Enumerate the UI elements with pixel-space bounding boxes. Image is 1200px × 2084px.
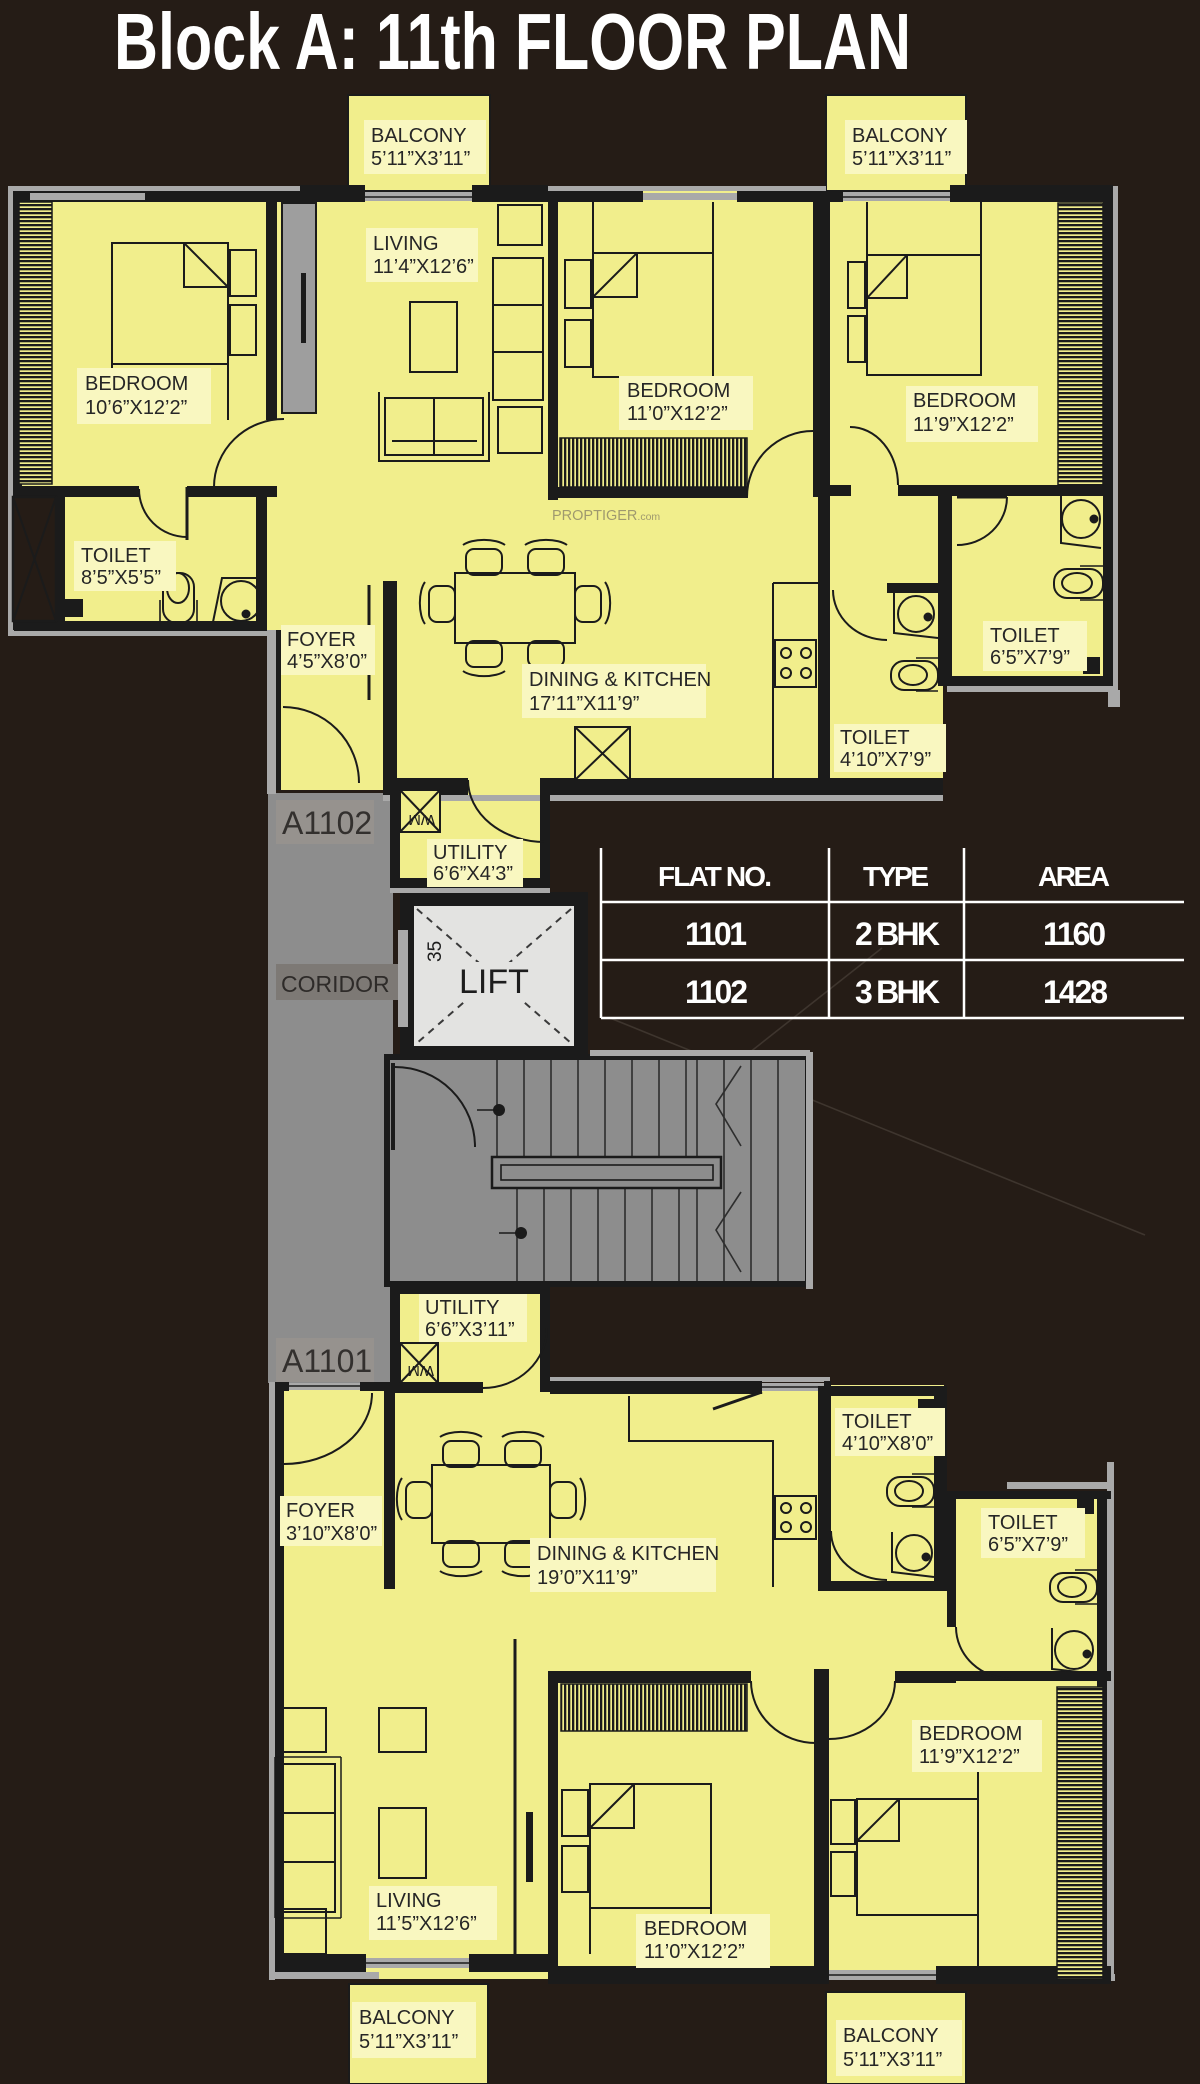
svg-text:LIVING: LIVING	[373, 233, 439, 255]
svg-text:5’11”X3’11”: 5’11”X3’11”	[371, 148, 470, 170]
svg-text:11’9”X12’2”: 11’9”X12’2”	[913, 414, 1014, 436]
svg-text:6’6”X3’11”: 6’6”X3’11”	[425, 1319, 515, 1341]
svg-text:WM: WM	[407, 1362, 434, 1379]
svg-text:8’5”X5’5”: 8’5”X5’5”	[81, 567, 161, 589]
svg-text:2 BHK: 2 BHK	[855, 916, 940, 952]
svg-text:1101: 1101	[685, 916, 747, 952]
svg-text:3 BHK: 3 BHK	[855, 974, 940, 1010]
svg-text:1428: 1428	[1043, 974, 1108, 1010]
svg-text:BALCONY: BALCONY	[359, 2007, 455, 2029]
svg-text:BEDROOM: BEDROOM	[85, 373, 188, 395]
svg-text:1102: 1102	[685, 974, 748, 1010]
svg-text:TYPE: TYPE	[863, 861, 929, 892]
svg-text:6’5”X7’9”: 6’5”X7’9”	[988, 1534, 1068, 1556]
svg-text:LIVING: LIVING	[376, 1890, 442, 1912]
svg-text:1160: 1160	[1043, 916, 1106, 952]
svg-text:TOILET: TOILET	[842, 1411, 912, 1433]
svg-text:4’10”X7’9”: 4’10”X7’9”	[840, 749, 931, 771]
svg-text:A1102: A1102	[282, 805, 372, 841]
svg-text:3’10”X8’0”: 3’10”X8’0”	[286, 1523, 377, 1545]
svg-text:Block A: 11th FLOOR PLAN: Block A: 11th FLOOR PLAN	[114, 0, 911, 86]
svg-text:6’6”X4’3”: 6’6”X4’3”	[433, 863, 513, 885]
svg-text:FOYER: FOYER	[286, 1500, 355, 1522]
svg-text:BEDROOM: BEDROOM	[919, 1723, 1022, 1745]
svg-text:BEDROOM: BEDROOM	[627, 380, 730, 402]
svg-text:17’11”X11’9”: 17’11”X11’9”	[529, 693, 639, 715]
svg-text:TOILET: TOILET	[990, 625, 1060, 647]
svg-text:LIFT: LIFT	[459, 963, 529, 1001]
svg-text:5’11”X3’11”: 5’11”X3’11”	[359, 2031, 458, 2053]
svg-text:DINING & KITCHEN: DINING & KITCHEN	[537, 1543, 719, 1565]
svg-text:TOILET: TOILET	[840, 727, 910, 749]
svg-text:TOILET: TOILET	[988, 1512, 1058, 1534]
svg-text:UTILITY: UTILITY	[425, 1297, 499, 1319]
svg-text:PROPTIGER.com: PROPTIGER.com	[552, 508, 660, 524]
svg-text:11’4”X12’6”: 11’4”X12’6”	[373, 256, 474, 278]
svg-text:5’11”X3’11”: 5’11”X3’11”	[843, 2049, 942, 2071]
svg-text:11’5”X12’6”: 11’5”X12’6”	[376, 1913, 477, 1935]
svg-text:CORIDOR: CORIDOR	[281, 971, 390, 997]
svg-text:BALCONY: BALCONY	[852, 125, 948, 147]
svg-text:WM: WM	[408, 811, 435, 828]
svg-text:A1101: A1101	[282, 1343, 372, 1379]
svg-text:11’0”X12’2”: 11’0”X12’2”	[644, 1941, 745, 1963]
svg-text:UTILITY: UTILITY	[433, 842, 507, 864]
svg-text:11’0”X12’2”: 11’0”X12’2”	[627, 403, 728, 425]
svg-text:10’6”X12’2”: 10’6”X12’2”	[85, 397, 187, 419]
svg-text:AREA: AREA	[1038, 861, 1110, 892]
svg-text:4’5”X8’0”: 4’5”X8’0”	[287, 651, 367, 673]
svg-text:11’9”X12’2”: 11’9”X12’2”	[919, 1746, 1020, 1768]
svg-text:BEDROOM: BEDROOM	[644, 1918, 747, 1940]
svg-text:19’0”X11’9”: 19’0”X11’9”	[537, 1567, 638, 1589]
svg-text:BALCONY: BALCONY	[843, 2025, 939, 2047]
svg-text:4’10”X8’0”: 4’10”X8’0”	[842, 1433, 933, 1455]
svg-text:TOILET: TOILET	[81, 545, 151, 567]
svg-text:BEDROOM: BEDROOM	[913, 390, 1016, 412]
svg-text:5’11”X3’11”: 5’11”X3’11”	[852, 148, 951, 170]
svg-text:FOYER: FOYER	[287, 629, 356, 651]
svg-text:BALCONY: BALCONY	[371, 125, 467, 147]
svg-text:DINING & KITCHEN: DINING & KITCHEN	[529, 669, 711, 691]
svg-text:35: 35	[425, 941, 446, 962]
svg-text:FLAT NO.: FLAT NO.	[658, 861, 772, 892]
svg-text:6’5”X7’9”: 6’5”X7’9”	[990, 647, 1070, 669]
